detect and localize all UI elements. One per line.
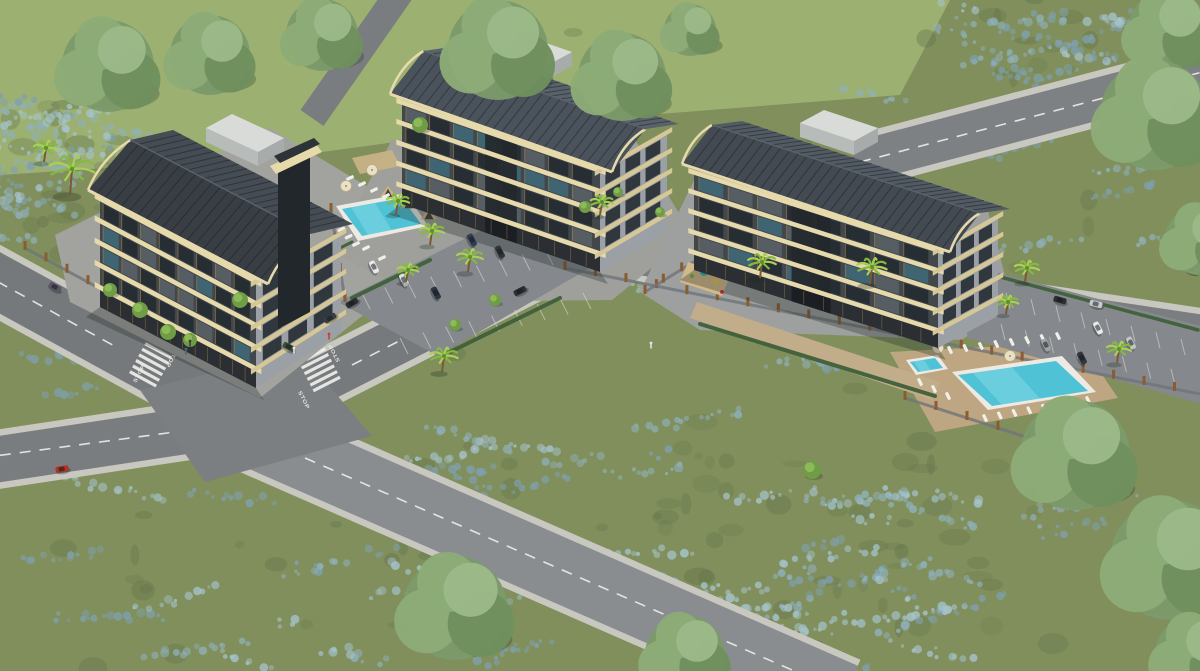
umbrella: [1005, 351, 1016, 362]
umbrella: [341, 181, 352, 192]
umbrella: [367, 165, 378, 176]
aerial-architectural-rendering: STOPSTOPSTOPSTOP: [0, 0, 1200, 671]
render-viewport: Aerial 3D rendering of a residential com…: [0, 0, 1200, 671]
